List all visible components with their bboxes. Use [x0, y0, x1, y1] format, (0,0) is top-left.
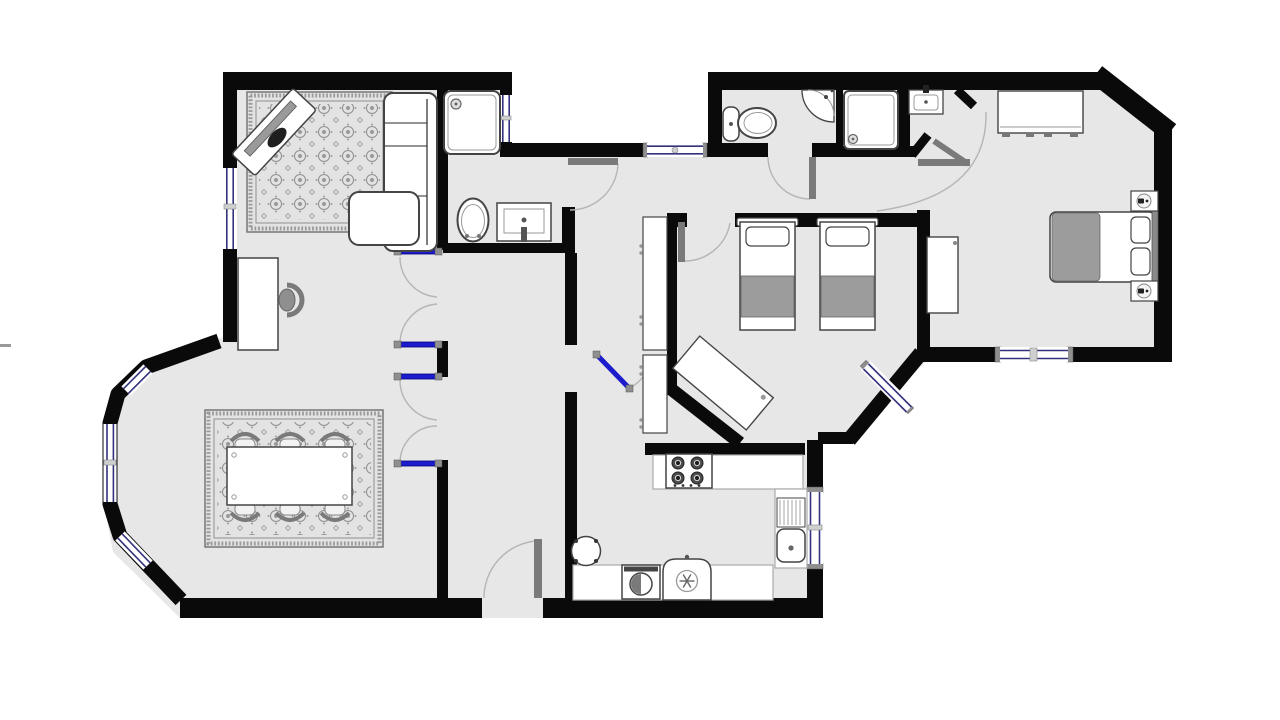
- bathroom-shower-window: [500, 95, 512, 142]
- tall-cabinet-1: [643, 217, 667, 350]
- wardrobe: [998, 91, 1083, 137]
- wc-toilet: [723, 107, 776, 141]
- desk: [238, 258, 278, 350]
- kitchen-window: [807, 487, 823, 569]
- bay-window-2: [104, 424, 116, 502]
- master-bedroom-window: [995, 347, 1073, 362]
- dining-table: [227, 447, 352, 505]
- round-table: [572, 537, 601, 566]
- lounge-chaise: [349, 192, 419, 245]
- nightstand-sconce-top: [1131, 191, 1158, 211]
- fridge: [663, 555, 711, 600]
- toilet: [458, 199, 489, 242]
- kitchen-sink: [777, 498, 805, 562]
- dining-area: [205, 410, 383, 547]
- corridor-north-window: [643, 143, 707, 157]
- hob: [666, 454, 712, 488]
- washing-machine: [622, 565, 660, 599]
- single-bed-2: [817, 218, 878, 330]
- floor-plan: [0, 0, 1280, 720]
- living-room-window: [223, 168, 237, 249]
- floor-plan-canvas: [0, 0, 1280, 720]
- shower-tray-2: [844, 91, 898, 149]
- left-edge-mark: [0, 344, 11, 347]
- shower-tray: [444, 91, 500, 154]
- double-bed: [1050, 211, 1158, 283]
- vanity-sink: [497, 203, 551, 242]
- nightstand-sconce-bottom: [1131, 281, 1158, 301]
- dresser: [927, 237, 958, 313]
- single-bed-1: [737, 218, 798, 330]
- tall-cabinet-2: [643, 355, 667, 433]
